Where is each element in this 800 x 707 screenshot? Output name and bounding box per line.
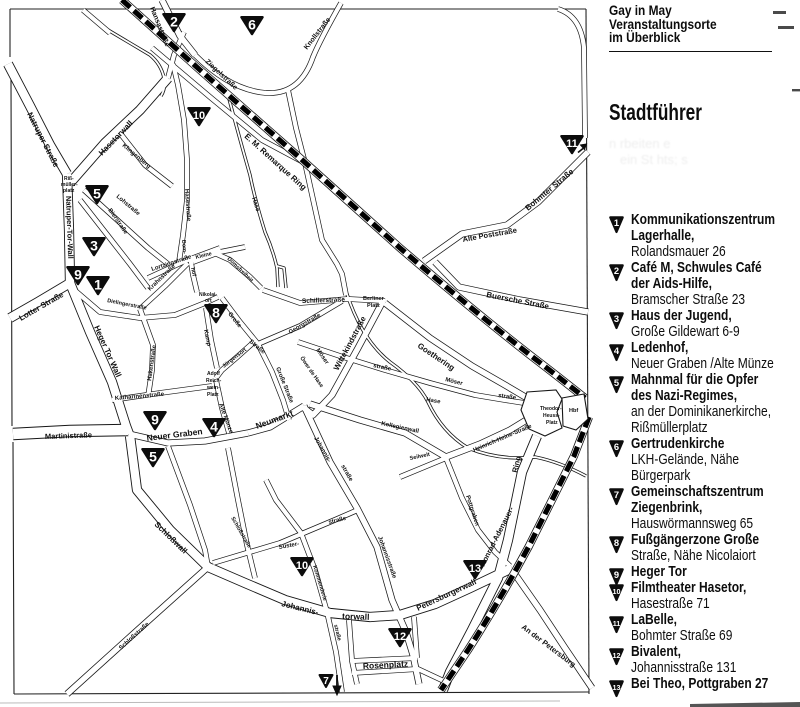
svg-text:platz: platz [63, 188, 75, 194]
svg-text:9: 9 [614, 569, 619, 580]
svg-text:13: 13 [613, 683, 621, 692]
svg-text:12: 12 [613, 651, 621, 660]
svg-text:Platz: Platz [367, 303, 380, 309]
svg-text:2: 2 [170, 14, 178, 30]
svg-text:torwall: torwall [342, 611, 370, 622]
svg-text:Platz: Platz [546, 420, 558, 426]
svg-text:1: 1 [614, 217, 619, 228]
svg-text:3: 3 [90, 238, 98, 254]
svg-text:10: 10 [296, 560, 308, 572]
svg-text:Reich-: Reich- [206, 378, 222, 384]
svg-text:10: 10 [613, 587, 621, 596]
svg-text:ort: ort [205, 298, 212, 304]
svg-text:13: 13 [469, 563, 481, 575]
svg-text:3: 3 [614, 313, 619, 324]
svg-text:Theodor-: Theodor- [540, 406, 562, 412]
svg-text:Dom-: Dom- [180, 240, 187, 255]
svg-text:6: 6 [248, 17, 256, 33]
svg-text:Hbf: Hbf [569, 408, 578, 414]
svg-text:6: 6 [614, 441, 619, 452]
svg-text:11: 11 [566, 138, 578, 150]
svg-text:8: 8 [614, 537, 619, 548]
svg-text:4: 4 [614, 345, 620, 356]
svg-text:5: 5 [93, 186, 101, 202]
svg-text:Adolf: Adolf [207, 371, 220, 377]
svg-text:Martinistraße: Martinistraße [45, 430, 92, 441]
svg-text:Platz: Platz [207, 392, 219, 398]
svg-text:Berliner: Berliner [363, 296, 385, 302]
svg-text:9: 9 [151, 412, 159, 428]
svg-text:7: 7 [614, 489, 619, 500]
svg-text:11: 11 [613, 619, 621, 628]
svg-text:7: 7 [323, 676, 329, 687]
svg-text:1: 1 [94, 277, 102, 293]
svg-text:10: 10 [193, 110, 205, 122]
svg-text:wein-: wein- [206, 385, 220, 391]
svg-text:Heuss-: Heuss- [543, 413, 560, 419]
svg-text:12: 12 [394, 631, 406, 643]
svg-text:5: 5 [149, 449, 157, 465]
svg-text:5: 5 [614, 377, 619, 388]
svg-text:8: 8 [212, 305, 220, 321]
svg-text:9: 9 [74, 267, 82, 283]
svg-text:4: 4 [210, 419, 218, 435]
svg-text:2: 2 [614, 265, 619, 276]
